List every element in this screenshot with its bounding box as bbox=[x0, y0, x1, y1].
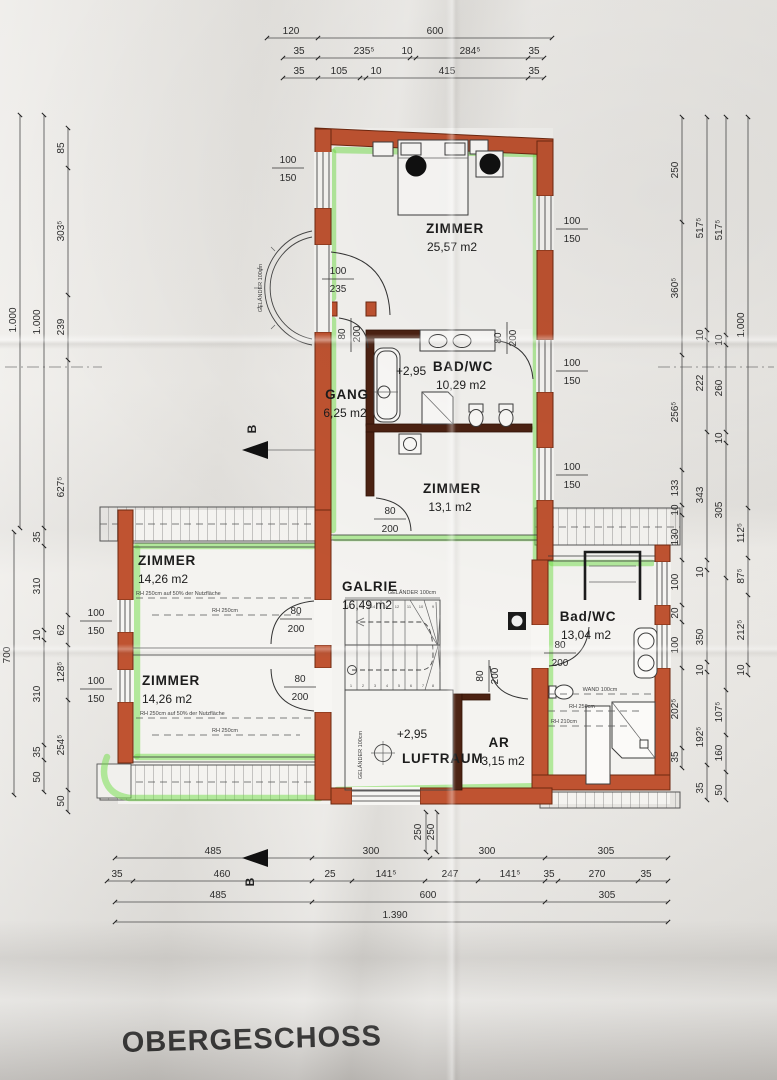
section-arrow-icon bbox=[242, 849, 268, 867]
dim-label: 1.390 bbox=[382, 910, 407, 921]
dim-label: 239 bbox=[56, 318, 67, 335]
dim-label: 1.000 bbox=[8, 307, 19, 332]
dim-label: 10 bbox=[714, 334, 725, 346]
dim-label: 305 bbox=[599, 890, 616, 901]
room-name: LUFTRAUM bbox=[402, 751, 483, 766]
window-size-label: 100 bbox=[564, 358, 581, 369]
door-size-label: 80 bbox=[290, 606, 302, 617]
dim-label: 35 bbox=[528, 46, 540, 57]
dim-label: 35 bbox=[543, 869, 555, 880]
dim-label: 485 bbox=[205, 846, 222, 857]
dim-label: 600 bbox=[427, 26, 444, 37]
dim-label: 360⁵ bbox=[670, 278, 681, 299]
dim-label: 35 bbox=[32, 531, 43, 543]
window-size-label: 100 bbox=[88, 676, 105, 687]
balcony-door-size-label: 235 bbox=[330, 284, 347, 295]
door-size-label: 200 bbox=[508, 329, 519, 346]
door-size-label: 200 bbox=[292, 692, 309, 703]
dim-label: 100 bbox=[670, 636, 681, 653]
dim-label: 284⁵ bbox=[460, 46, 481, 57]
dim-label: 260 bbox=[714, 379, 725, 396]
door-size-label: 200 bbox=[552, 658, 569, 669]
dim-label: 130 bbox=[670, 528, 681, 545]
dim-label: 35 bbox=[293, 46, 305, 57]
balcony-door-size-label: 100 bbox=[330, 266, 347, 277]
room-area: 6,25 m2 bbox=[323, 406, 367, 420]
dim-label: 128⁵ bbox=[56, 662, 67, 683]
dim-label: 235⁵ bbox=[354, 46, 375, 57]
section-arrow-icon bbox=[242, 441, 268, 459]
room-name: ZIMMER bbox=[423, 481, 481, 496]
dim-label: 310 bbox=[32, 685, 43, 702]
window-size-label: 100 bbox=[564, 462, 581, 473]
door-size-label: 200 bbox=[382, 524, 399, 535]
dim-label: 35 bbox=[670, 751, 681, 763]
dim-label: 10 bbox=[670, 504, 681, 516]
room-name: ZIMMER bbox=[142, 673, 200, 688]
dim-label: 35 bbox=[695, 782, 706, 794]
dim-label: 250 bbox=[413, 823, 424, 840]
dim-label: 343 bbox=[695, 486, 706, 503]
dim-label: 517⁵ bbox=[714, 220, 725, 241]
dim-label: 350 bbox=[695, 628, 706, 645]
dim-label: 141⁵ bbox=[376, 869, 397, 880]
dim-label: 270 bbox=[589, 869, 606, 880]
plant-icon bbox=[406, 156, 427, 177]
dim-label: 10 bbox=[736, 664, 747, 676]
floorplan-drawing: 120 600 35 235⁵ 10 284⁵ 35 35 105 10 415… bbox=[0, 0, 777, 1080]
section-label: B bbox=[245, 424, 259, 433]
svg-text:13: 13 bbox=[383, 604, 388, 609]
dim-label: 87⁵ bbox=[736, 568, 747, 583]
dim-label: 250 bbox=[426, 823, 437, 840]
door-size-label: 80 bbox=[475, 670, 486, 682]
room-note: RH 250cm bbox=[212, 608, 238, 614]
section-label: B bbox=[243, 877, 257, 886]
room-note: RH 250cm bbox=[212, 728, 238, 734]
room-area: 13,04 m2 bbox=[561, 628, 611, 642]
window-size-label: 100 bbox=[280, 155, 297, 166]
dim-label: 247 bbox=[442, 869, 459, 880]
room-area: 10,29 m2 bbox=[436, 378, 486, 392]
door-size-label: 80 bbox=[337, 328, 348, 340]
dim-label: 202⁵ bbox=[670, 699, 681, 720]
room-note: RH 250cm bbox=[569, 704, 595, 710]
dim-label: 254⁵ bbox=[56, 735, 67, 756]
level-label: +2,95 bbox=[397, 727, 428, 741]
dim-label: 120 bbox=[283, 26, 300, 37]
dim-label: 35 bbox=[111, 869, 123, 880]
door-size-label: 80 bbox=[493, 332, 504, 344]
room-note: WAND 100cm bbox=[583, 687, 618, 693]
dim-label: 305 bbox=[598, 846, 615, 857]
room-name: Bad/WC bbox=[560, 609, 617, 624]
dim-label: 50 bbox=[32, 771, 43, 783]
dim-label: 10 bbox=[370, 66, 382, 77]
dim-label: 35 bbox=[640, 869, 652, 880]
dim-label: 10 bbox=[695, 566, 706, 578]
dim-label: 10 bbox=[695, 329, 706, 341]
dim-label: 256⁵ bbox=[670, 402, 681, 423]
room-area: 14,26 m2 bbox=[138, 572, 188, 586]
window-size-label: 100 bbox=[88, 608, 105, 619]
dim-label: 192⁵ bbox=[695, 727, 706, 748]
window-size-label: 150 bbox=[88, 694, 105, 705]
dim-label: 50 bbox=[714, 784, 725, 796]
plan-title: OBERGESCHOSS bbox=[121, 1020, 382, 1059]
dim-label: 305 bbox=[714, 501, 725, 518]
room-area: 13,1 m2 bbox=[428, 500, 472, 514]
svg-text:16: 16 bbox=[347, 604, 352, 609]
dim-label: 600 bbox=[420, 890, 437, 901]
level-label: +2,95 bbox=[396, 364, 427, 378]
dim-label: 141⁵ bbox=[500, 869, 521, 880]
dim-label: 415 bbox=[439, 66, 456, 77]
dim-label: 700 bbox=[2, 646, 13, 663]
dim-label: 485 bbox=[210, 890, 227, 901]
room-area: 3,15 m2 bbox=[481, 754, 525, 768]
dim-label: 100 bbox=[670, 573, 681, 590]
dim-label: 10 bbox=[32, 629, 43, 641]
room-note: RH 210cm bbox=[551, 719, 577, 725]
window-size-label: 100 bbox=[564, 216, 581, 227]
dim-label: 300 bbox=[479, 846, 496, 857]
dim-label: 35 bbox=[293, 66, 305, 77]
dim-label: 107⁵ bbox=[714, 702, 725, 723]
room-name: ZIMMER bbox=[138, 553, 196, 568]
room-note: RH 250cm auf 50% der Nutzfläche bbox=[136, 591, 221, 597]
dim-label: 10 bbox=[401, 46, 413, 57]
svg-text:14: 14 bbox=[371, 604, 376, 609]
dim-label: 460 bbox=[214, 869, 231, 880]
svg-text:10: 10 bbox=[419, 604, 424, 609]
room-area: 14,26 m2 bbox=[142, 692, 192, 706]
window-size-label: 150 bbox=[280, 173, 297, 184]
dim-label: 112⁵ bbox=[736, 523, 747, 543]
door-size-label: 200 bbox=[352, 325, 363, 342]
door-size-label: 80 bbox=[294, 674, 306, 685]
dim-label: 25 bbox=[324, 869, 336, 880]
room-name: ZIMMER bbox=[426, 221, 484, 236]
door-size-label: 200 bbox=[490, 667, 501, 684]
dim-label: 160 bbox=[714, 744, 725, 761]
dim-label: 250 bbox=[670, 161, 681, 178]
room-name: AR bbox=[488, 735, 509, 750]
railing-label: GELÄNDER 100cm bbox=[257, 263, 264, 312]
dim-label: 35 bbox=[528, 66, 540, 77]
room-note: RH 250cm auf 50% der Nutzfläche bbox=[140, 711, 225, 717]
dim-label: 222 bbox=[695, 374, 706, 391]
room-area: 25,57 m2 bbox=[427, 240, 477, 254]
dim-label: 212⁵ bbox=[736, 620, 747, 641]
dim-label: 300 bbox=[363, 846, 380, 857]
dim-label: 50 bbox=[56, 795, 67, 807]
window-size-label: 150 bbox=[564, 376, 581, 387]
dim-label: 10 bbox=[714, 432, 725, 444]
railing-label: GELÄNDER 100cm bbox=[388, 589, 437, 596]
svg-text:15: 15 bbox=[359, 604, 364, 609]
room-name: BAD/WC bbox=[433, 359, 493, 374]
dim-label: 62 bbox=[56, 624, 67, 636]
plant-icon bbox=[480, 154, 501, 175]
dim-label: 35 bbox=[32, 746, 43, 758]
door-size-label: 80 bbox=[384, 506, 396, 517]
door-size-label: 200 bbox=[288, 624, 305, 635]
railing-label: GELÄNDER 100cm bbox=[357, 730, 364, 779]
dim-label: 10 bbox=[695, 664, 706, 676]
dim-label: 310 bbox=[32, 577, 43, 594]
dim-label: 133 bbox=[670, 479, 681, 496]
window-size-label: 150 bbox=[88, 626, 105, 637]
svg-text:12: 12 bbox=[395, 604, 400, 609]
dim-label: 517⁵ bbox=[695, 218, 706, 239]
dim-label: 105 bbox=[331, 66, 348, 77]
dim-label: 1.000 bbox=[32, 309, 43, 334]
window-size-label: 150 bbox=[564, 234, 581, 245]
room-name: GANG bbox=[325, 387, 369, 402]
dim-label: 85 bbox=[56, 142, 67, 154]
dim-label: 303⁵ bbox=[56, 221, 67, 242]
dim-label: 1.000 bbox=[736, 312, 747, 337]
window-size-label: 150 bbox=[564, 480, 581, 491]
dim-label: 20 bbox=[670, 607, 681, 619]
dim-label: 627⁵ bbox=[56, 477, 67, 498]
